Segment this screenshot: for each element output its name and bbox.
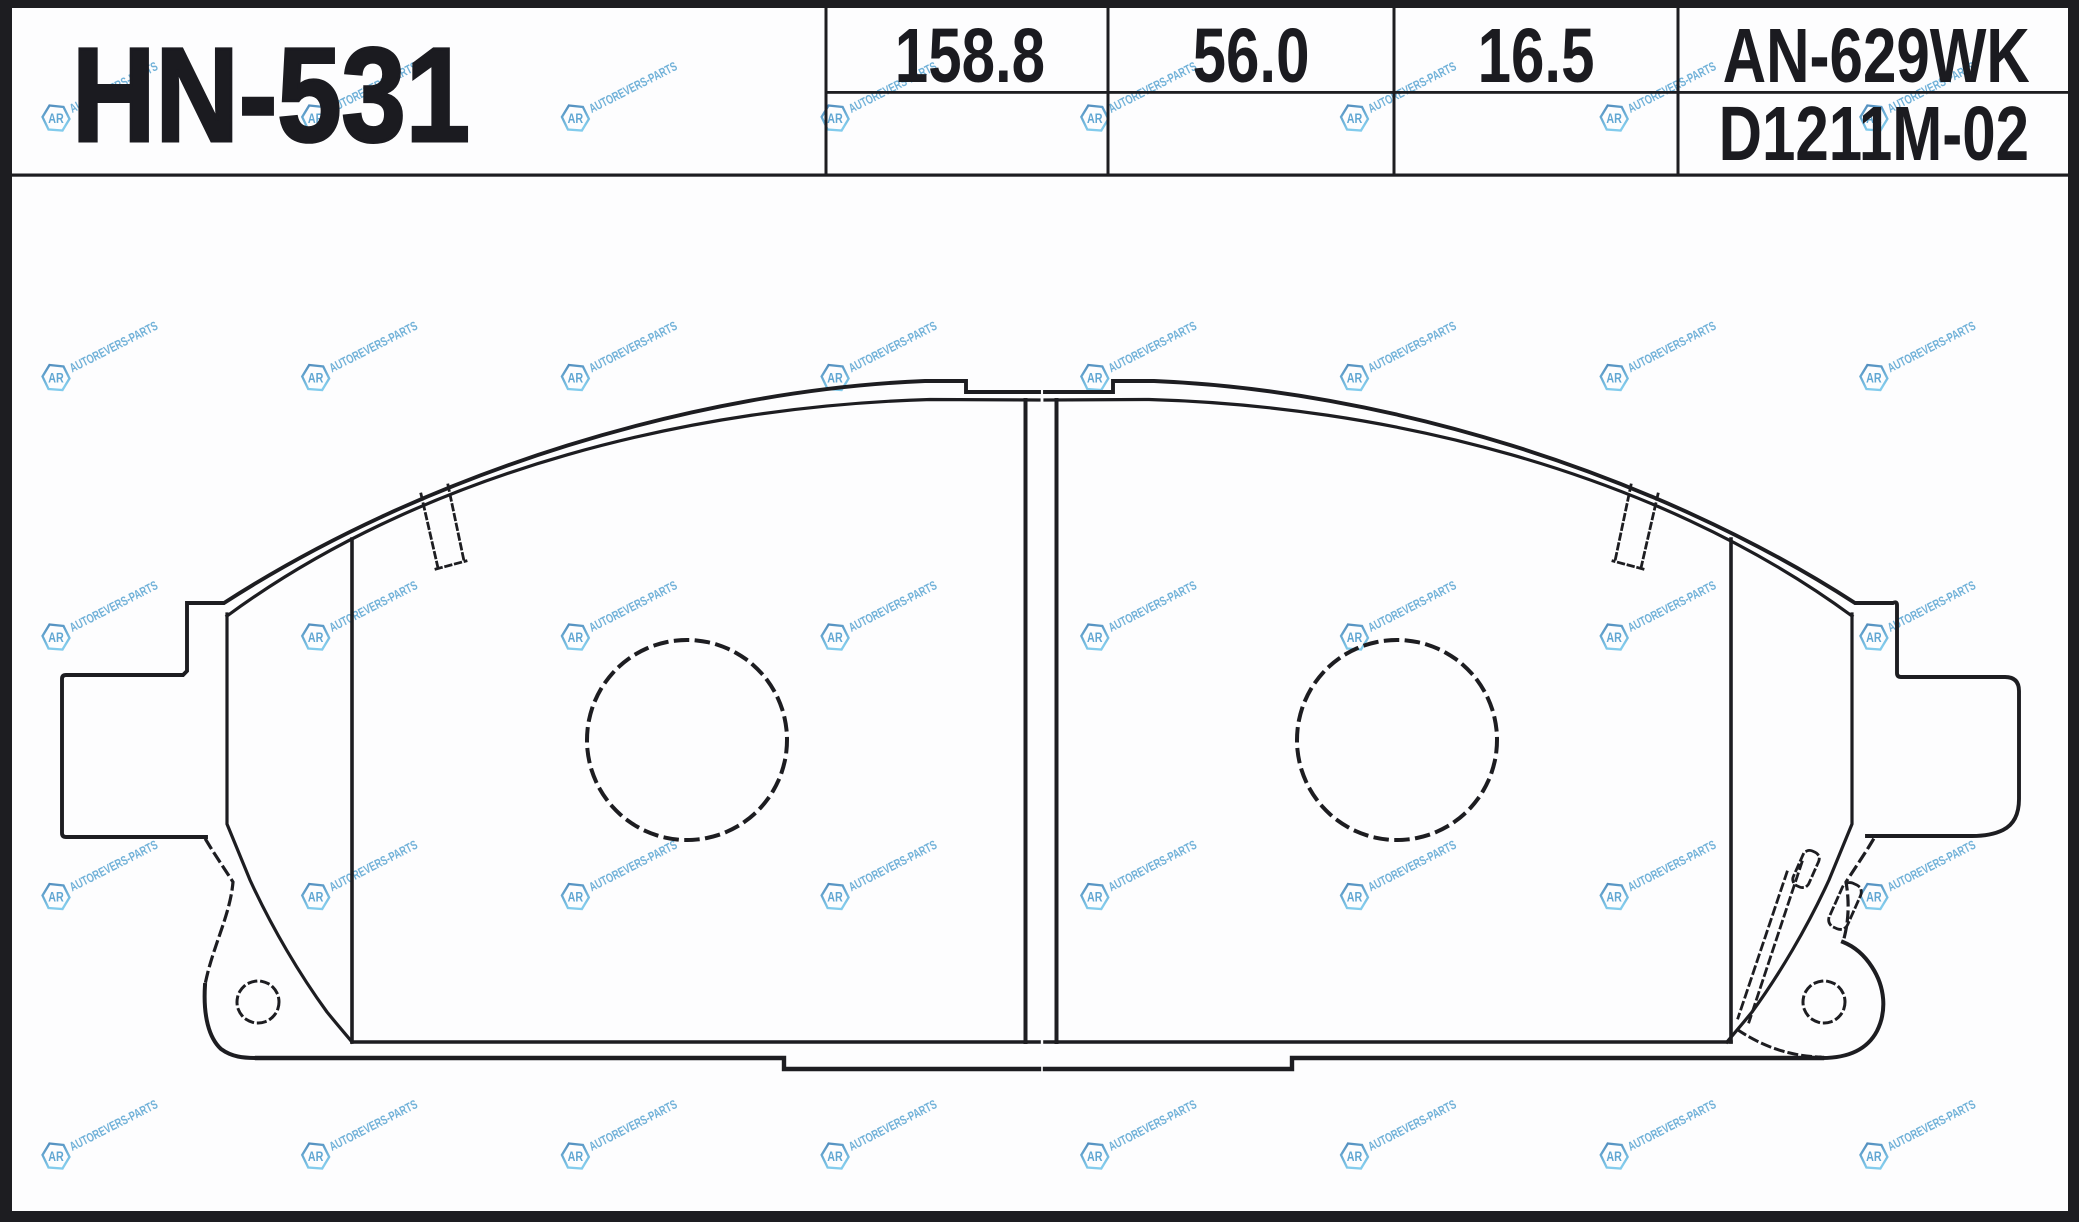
svg-text:16.5: 16.5	[1478, 12, 1595, 99]
svg-text:158.8: 158.8	[895, 12, 1045, 99]
svg-text:AN-629WK: AN-629WK	[1723, 12, 2030, 99]
svg-text:D1211M-02: D1211M-02	[1719, 90, 2029, 177]
svg-text:56.0: 56.0	[1193, 12, 1310, 99]
svg-text:HN-531: HN-531	[72, 20, 470, 170]
